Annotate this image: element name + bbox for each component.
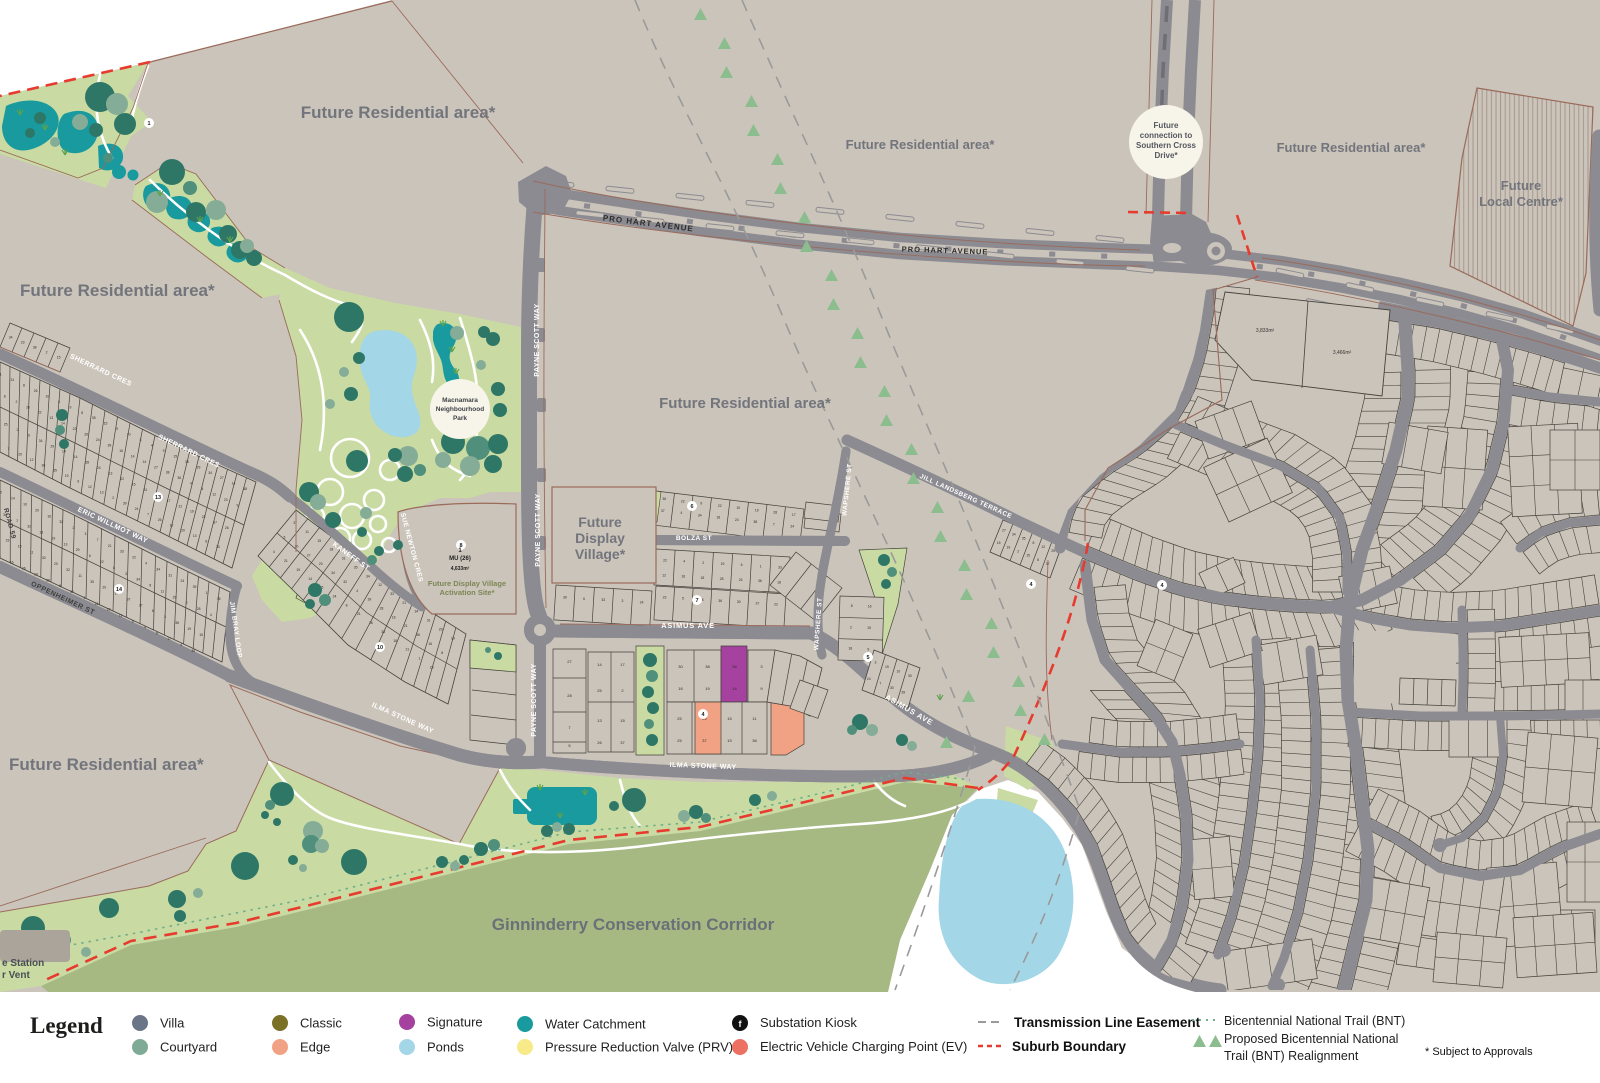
svg-text:Villa: Villa [160,1016,185,1031]
svg-text:34: 34 [366,574,370,578]
svg-text:39: 39 [193,585,197,589]
svg-text:12: 12 [30,458,34,462]
svg-text:37: 37 [139,603,143,607]
svg-text:14: 14 [597,662,602,667]
svg-text:35: 35 [217,597,221,601]
svg-text:16: 16 [428,642,432,646]
svg-text:16: 16 [119,449,123,453]
svg-text:Future Residential area*: Future Residential area* [846,137,996,152]
svg-text:34: 34 [208,471,212,475]
svg-text:33: 33 [390,592,394,596]
svg-text:PAYNE SCOTT WAY: PAYNE SCOTT WAY [531,663,538,736]
svg-text:38: 38 [705,664,710,669]
svg-text:36: 36 [416,633,420,637]
svg-text:19: 19 [451,636,455,640]
svg-text:13: 13 [100,491,104,495]
svg-text:30: 30 [890,686,894,690]
svg-text:34: 34 [331,571,335,575]
svg-text:24: 24 [96,438,100,442]
svg-text:13: 13 [155,495,161,501]
svg-text:24: 24 [640,600,644,604]
svg-text:29: 29 [107,608,111,612]
svg-text:Pressure Reduction Valve (PRV): Pressure Reduction Valve (PRV) [545,1040,733,1055]
svg-text:19: 19 [34,572,38,576]
svg-text:19: 19 [296,568,300,572]
svg-text:1: 1 [419,657,421,661]
svg-text:2: 2 [850,625,852,629]
svg-text:2: 2 [46,350,48,354]
svg-text:22: 22 [681,499,685,503]
svg-text:27: 27 [307,553,311,557]
svg-text:20: 20 [54,562,58,566]
svg-text:6: 6 [690,504,693,510]
svg-text:22: 22 [202,515,206,519]
svg-text:14: 14 [232,482,236,486]
svg-text:Future Residential area*: Future Residential area* [659,395,831,412]
svg-text:22: 22 [73,427,77,431]
svg-text:16: 16 [868,605,872,609]
svg-text:connection to: connection to [1140,131,1193,140]
svg-text:32: 32 [66,568,70,572]
svg-text:1: 1 [0,373,2,377]
svg-text:11: 11 [161,589,165,593]
svg-text:39: 39 [123,502,127,506]
svg-text:Legend: Legend [30,1013,103,1038]
svg-text:20: 20 [102,586,106,590]
svg-text:23: 23 [663,596,667,600]
svg-text:* Subject to Approvals: * Subject to Approvals [1425,1046,1533,1058]
svg-text:6: 6 [28,433,30,437]
svg-text:26: 26 [26,405,30,409]
svg-text:3: 3 [622,599,624,603]
svg-text:19: 19 [65,474,69,478]
svg-text:36: 36 [177,476,181,480]
svg-text:1: 1 [16,519,18,523]
svg-text:5: 5 [682,597,684,601]
svg-text:12: 12 [1041,545,1045,549]
svg-text:Classic: Classic [300,1016,342,1031]
svg-text:16: 16 [10,561,14,565]
svg-text:38: 38 [33,345,37,349]
svg-text:3: 3 [58,400,60,404]
svg-text:35: 35 [53,469,57,473]
svg-text:16: 16 [678,686,683,691]
svg-text:8: 8 [149,584,151,588]
svg-text:7: 7 [147,512,149,516]
svg-text:23: 23 [430,665,434,669]
svg-text:31: 31 [11,378,15,382]
svg-text:31: 31 [427,619,431,623]
svg-text:2: 2 [186,601,188,605]
svg-text:19: 19 [1007,545,1011,549]
svg-text:24: 24 [97,466,101,470]
svg-text:24: 24 [735,518,739,522]
svg-text:19: 19 [721,562,725,566]
svg-text:18: 18 [701,576,705,580]
svg-text:31: 31 [168,573,172,577]
svg-text:15: 15 [867,626,871,630]
svg-text:9: 9 [156,631,158,635]
svg-text:5: 5 [59,584,61,588]
svg-text:8: 8 [346,603,348,607]
svg-text:Display: Display [575,530,625,546]
svg-text:18: 18 [392,615,396,619]
svg-text:38: 38 [753,520,757,524]
svg-text:39: 39 [901,691,905,695]
svg-text:4: 4 [273,550,275,554]
svg-text:9: 9 [70,405,72,409]
svg-text:27: 27 [1002,528,1006,532]
svg-text:ASIMUS AVE: ASIMUS AVE [661,621,715,630]
svg-text:18: 18 [330,548,334,552]
svg-text:39: 39 [108,443,112,447]
svg-text:24: 24 [181,579,185,583]
svg-text:21: 21 [284,559,288,563]
svg-text:20: 20 [319,562,323,566]
svg-text:37: 37 [661,509,665,513]
svg-text:11: 11 [78,574,82,578]
svg-text:Signature: Signature [427,1015,483,1030]
svg-text:35: 35 [1022,537,1026,541]
svg-text:6: 6 [741,563,743,567]
svg-text:29: 29 [50,444,54,448]
svg-text:17: 17 [167,637,171,641]
svg-text:22: 22 [132,556,136,560]
svg-text:4: 4 [202,487,204,491]
svg-text:24: 24 [790,525,794,529]
svg-text:13: 13 [64,542,68,546]
svg-text:2: 2 [702,561,704,565]
svg-text:36: 36 [42,463,46,467]
svg-text:12: 12 [662,574,666,578]
svg-text:37: 37 [127,597,131,601]
svg-text:7: 7 [879,682,881,686]
svg-text:39: 39 [368,598,372,602]
svg-text:6: 6 [583,597,585,601]
svg-text:34: 34 [732,664,737,669]
svg-text:32: 32 [59,520,63,524]
svg-text:19: 19 [705,686,710,691]
svg-text:19: 19 [727,738,732,743]
svg-text:Bicentennial National Trail (B: Bicentennial National Trail (BNT) [1224,1014,1405,1028]
svg-text:31: 31 [342,557,346,561]
svg-text:12: 12 [212,493,216,497]
svg-text:13: 13 [109,472,113,476]
svg-text:24: 24 [135,507,139,511]
svg-text:10: 10 [45,394,49,398]
svg-text:22: 22 [120,477,124,481]
svg-text:18: 18 [777,580,781,584]
svg-text:Trail (BNT) Realignment: Trail (BNT) Realignment [1224,1049,1359,1063]
svg-text:15: 15 [1026,554,1030,558]
svg-text:Southern Cross: Southern Cross [1136,141,1197,150]
svg-text:14: 14 [143,460,147,464]
svg-text:PAYNE SCOTT WAY: PAYNE SCOTT WAY [534,303,541,376]
svg-text:4: 4 [356,589,358,593]
svg-text:33: 33 [778,565,782,569]
svg-text:12: 12 [88,485,92,489]
svg-text:Future Residential area*: Future Residential area* [20,281,215,300]
svg-text:36: 36 [191,649,195,653]
svg-text:21: 21 [406,648,410,652]
svg-text:10: 10 [736,506,740,510]
svg-text:5: 5 [0,491,2,495]
svg-text:17: 17 [167,499,171,503]
svg-text:3: 3 [164,615,166,619]
svg-text:2: 2 [1017,550,1019,554]
svg-text:18: 18 [393,639,397,643]
svg-text:Activation Site*: Activation Site* [439,588,494,597]
svg-text:38: 38 [243,487,247,491]
svg-text:24: 24 [333,595,337,599]
svg-text:MU (26): MU (26) [449,556,471,562]
svg-text:3: 3 [85,532,87,536]
svg-text:27: 27 [220,476,224,480]
svg-text:14: 14 [62,450,66,454]
svg-text:4: 4 [151,444,153,448]
svg-text:34: 34 [9,335,13,339]
svg-text:15: 15 [199,633,203,637]
svg-text:25: 25 [677,738,682,743]
svg-text:20: 20 [181,529,185,533]
svg-text:10: 10 [377,645,383,651]
svg-text:30: 30 [908,674,912,678]
svg-text:25: 25 [1051,549,1055,553]
svg-text:4,633m²: 4,633m² [451,566,470,572]
svg-text:10: 10 [23,503,27,507]
svg-text:Ginninderry Conservation Corri: Ginninderry Conservation Corridor [492,915,775,934]
svg-text:Future Residential area*: Future Residential area* [1277,140,1427,155]
svg-text:37: 37 [702,738,707,743]
svg-text:29: 29 [197,465,201,469]
svg-text:PAYNE SCOTT WAY: PAYNE SCOTT WAY [535,493,542,566]
svg-text:Village*: Village* [575,546,626,562]
svg-text:20: 20 [18,452,22,456]
svg-text:29: 29 [76,548,80,552]
svg-text:31: 31 [144,488,148,492]
svg-text:36: 36 [752,738,757,743]
svg-text:9: 9 [700,502,702,506]
svg-text:30: 30 [42,556,46,560]
svg-text:23: 23 [224,498,228,502]
svg-text:Courtyard: Courtyard [160,1040,217,1055]
svg-text:15: 15 [18,544,22,548]
svg-text:2: 2 [72,526,74,530]
svg-text:25: 25 [4,422,8,426]
svg-text:5: 5 [866,655,869,661]
svg-text:15: 15 [173,454,177,458]
svg-text:6: 6 [89,554,91,558]
svg-text:19: 19 [755,508,759,512]
svg-text:Substation Kiosk: Substation Kiosk [760,1015,857,1030]
svg-text:26: 26 [597,740,602,745]
svg-text:26: 26 [158,518,162,522]
svg-text:19: 19 [52,536,56,540]
svg-text:9: 9 [236,503,238,507]
svg-text:r Vent: r Vent [2,970,30,981]
svg-text:36: 36 [758,579,762,583]
svg-text:34: 34 [1012,533,1016,537]
svg-text:13: 13 [193,534,197,538]
svg-text:14: 14 [61,422,65,426]
svg-text:15: 15 [132,482,136,486]
svg-text:23: 23 [6,539,10,543]
svg-text:24: 24 [867,677,871,681]
svg-text:8: 8 [441,651,443,655]
svg-text:6: 6 [132,620,134,624]
svg-text:11: 11 [305,530,309,534]
svg-text:22: 22 [718,504,722,508]
svg-text:2: 2 [15,400,17,404]
svg-text:14: 14 [116,587,123,593]
svg-text:35: 35 [354,565,358,569]
svg-text:28: 28 [567,693,572,698]
svg-text:32: 32 [27,525,31,529]
svg-text:32: 32 [343,580,347,584]
svg-text:38: 38 [166,471,170,475]
svg-text:34: 34 [698,514,702,518]
svg-text:34: 34 [136,578,140,582]
svg-text:4: 4 [683,560,685,564]
svg-text:36: 36 [718,599,722,603]
svg-text:30: 30 [678,664,683,669]
svg-text:34: 34 [156,567,160,571]
svg-text:20: 20 [35,508,39,512]
svg-text:14: 14 [732,686,737,691]
svg-text:23: 23 [21,340,25,344]
svg-text:15: 15 [620,718,625,723]
svg-text:15: 15 [997,541,1001,545]
svg-text:22: 22 [178,504,182,508]
svg-text:4: 4 [180,643,182,647]
svg-text:1: 1 [206,591,208,595]
svg-text:14: 14 [11,497,15,501]
svg-text:Transmission Line Easement: Transmission Line Easement [1014,1015,1201,1030]
svg-text:1: 1 [760,564,762,568]
svg-text:Macnamara: Macnamara [442,397,478,404]
svg-text:2: 2 [112,496,114,500]
svg-text:8: 8 [4,394,6,398]
svg-text:28: 28 [85,461,89,465]
svg-text:7: 7 [695,598,698,604]
svg-text:9: 9 [116,427,118,431]
svg-text:37: 37 [756,601,760,605]
svg-text:35: 35 [185,460,189,464]
svg-text:9: 9 [163,449,165,453]
svg-text:21: 21 [357,612,361,616]
svg-text:8: 8 [205,540,207,544]
svg-text:17: 17 [620,662,625,667]
svg-text:9: 9 [867,647,869,651]
svg-text:16: 16 [369,621,373,625]
svg-text:3: 3 [125,572,127,576]
svg-text:4: 4 [190,482,192,486]
svg-text:BOLZA ST: BOLZA ST [676,535,712,542]
svg-text:Electric Vehicle Charging Poin: Electric Vehicle Charging Point (EV) [760,1039,967,1054]
svg-text:16: 16 [681,575,685,579]
svg-text:8: 8 [1037,558,1039,562]
svg-text:19: 19 [885,665,889,669]
svg-text:13: 13 [597,718,602,723]
svg-text:25: 25 [597,688,602,693]
svg-text:22: 22 [38,411,42,415]
svg-text:39: 39 [563,596,567,600]
svg-text:33: 33 [381,630,385,634]
svg-text:30: 30 [216,545,220,549]
svg-text:14: 14 [131,454,135,458]
svg-text:Future: Future [1501,178,1541,193]
svg-text:3,466m²: 3,466m² [1333,350,1352,356]
svg-text:28: 28 [720,577,724,581]
svg-text:34: 34 [39,439,43,443]
svg-text:3: 3 [139,438,141,442]
svg-text:Future: Future [578,514,622,530]
svg-text:35: 35 [90,580,94,584]
svg-text:15: 15 [727,716,732,721]
svg-text:6: 6 [152,609,154,613]
svg-text:26: 26 [225,526,229,530]
svg-text:22: 22 [100,560,104,564]
svg-text:4: 4 [145,562,147,566]
svg-text:13: 13 [49,416,53,420]
svg-text:28: 28 [380,607,384,611]
svg-text:Ponds: Ponds [427,1040,464,1055]
svg-text:29: 29 [173,595,177,599]
svg-text:26: 26 [22,567,26,571]
svg-text:14: 14 [308,577,312,581]
svg-text:29: 29 [439,627,443,631]
svg-text:36: 36 [662,497,666,501]
svg-text:10: 10 [127,433,131,437]
svg-text:6: 6 [77,480,79,484]
svg-text:37: 37 [620,740,625,745]
svg-text:21: 21 [404,624,408,628]
svg-text:17: 17 [792,513,796,517]
svg-text:27: 27 [567,659,572,664]
svg-text:19: 19 [190,510,194,514]
svg-text:38: 38 [175,621,179,625]
svg-text:Drive*: Drive* [1154,151,1178,160]
svg-text:5: 5 [283,536,285,540]
svg-text:8: 8 [851,604,853,608]
svg-text:2: 2 [16,428,18,432]
svg-text:12: 12 [95,602,99,606]
svg-text:34: 34 [415,610,419,614]
svg-text:11: 11 [30,550,34,554]
svg-text:35: 35 [92,416,96,420]
svg-text:28: 28 [773,511,777,515]
svg-text:Neighbourhood: Neighbourhood [436,406,484,413]
svg-text:27: 27 [154,465,158,469]
svg-text:4: 4 [210,613,212,617]
svg-text:21: 21 [402,601,406,605]
svg-text:Water Catchment: Water Catchment [545,1017,646,1032]
svg-text:8: 8 [113,566,115,570]
svg-text:4: 4 [144,625,146,629]
svg-text:16: 16 [47,514,51,518]
svg-text:18: 18 [716,516,720,520]
svg-text:21: 21 [108,544,112,548]
svg-text:28: 28 [197,607,201,611]
svg-text:3,833m²: 3,833m² [1256,328,1275,334]
svg-text:Local Centre*: Local Centre* [1479,194,1564,209]
svg-text:22: 22 [774,602,778,606]
svg-text:28: 28 [46,578,50,582]
svg-text:7: 7 [8,447,10,451]
svg-text:Future Residential area*: Future Residential area* [301,103,496,122]
svg-text:10: 10 [897,669,901,673]
svg-text:14: 14 [74,455,78,459]
